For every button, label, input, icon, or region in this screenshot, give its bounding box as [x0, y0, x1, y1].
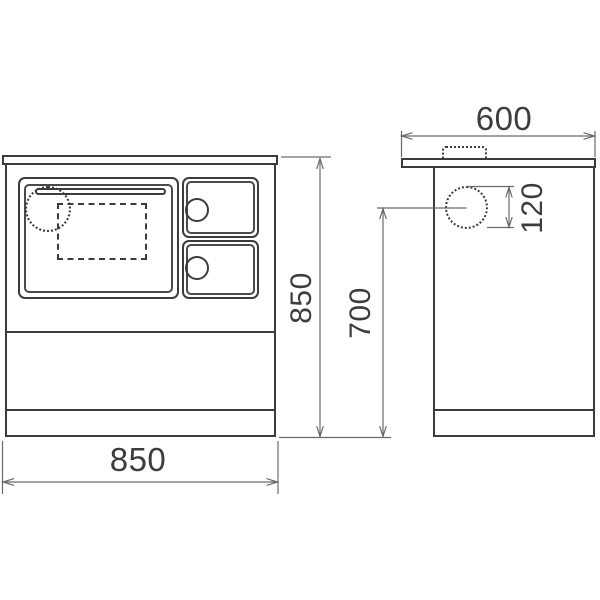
dim-label-front-height: 850 — [287, 238, 317, 358]
dim-flue-height — [377, 208, 467, 437]
dim-label-flue-diameter: 120 — [518, 148, 548, 268]
dim-label-flue-height: 700 — [346, 253, 376, 373]
technical-drawing: 850 600 850 700 120 — [0, 0, 600, 600]
dim-label-depth: 600 — [444, 104, 564, 134]
dim-label-front-width: 850 — [78, 445, 198, 475]
dim-flue-diameter — [466, 187, 514, 228]
